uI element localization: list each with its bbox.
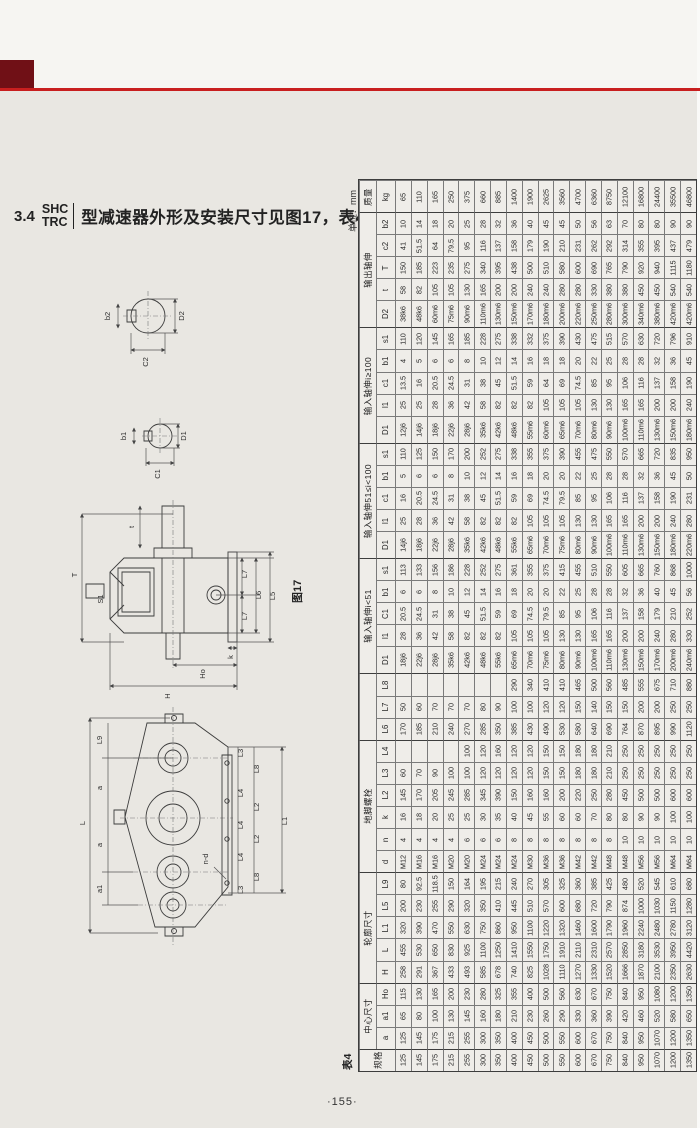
table-value-cell: M12 — [395, 850, 411, 872]
table-value-cell: 455 — [569, 558, 585, 580]
table-value-cell: 250 — [664, 696, 680, 718]
table-value-cell: 400 — [506, 1027, 522, 1049]
table-value-cell: 20 — [427, 806, 443, 828]
table-value-cell: 385 — [506, 718, 522, 740]
table-value-cell: 14 — [411, 212, 427, 234]
table-value-cell: 210 — [664, 602, 680, 624]
table-value-cell: 835 — [664, 443, 680, 465]
table-sub-label: kg — [376, 180, 395, 212]
table-value-cell: 1100 — [522, 916, 538, 938]
table-value-cell: 450 — [617, 784, 633, 806]
table-value-cell: 2850 — [617, 938, 633, 960]
table-value-cell: 63 — [601, 212, 617, 234]
table-sub-label: k — [376, 806, 395, 828]
table-value-cell: 36 — [664, 349, 680, 371]
table-value-cell: 4 — [427, 828, 443, 850]
table-value-cell: 70 — [617, 212, 633, 234]
dim-label-L2-1: L2 — [252, 803, 261, 811]
table-value-cell: 28 — [427, 394, 443, 416]
table-value-cell: 260 — [538, 1005, 554, 1027]
table-value-cell: 2310 — [585, 938, 601, 960]
table-value-cell: 2780 — [664, 916, 680, 938]
table-value-cell: 275 — [458, 256, 474, 278]
table-value-cell: 250 — [664, 740, 680, 762]
table-value-cell: 45 — [490, 372, 506, 394]
table-value-cell: 150m6 — [633, 646, 649, 673]
table-value-cell: 120 — [474, 762, 490, 784]
table-value-cell: 950 — [506, 916, 522, 938]
table-value-cell: 150 — [506, 784, 522, 806]
table-value-cell: 320 — [395, 916, 411, 938]
table-value-cell: 74.5 — [522, 602, 538, 624]
table-value-cell: 252 — [680, 602, 696, 624]
table-value-cell: 105 — [538, 624, 554, 646]
table-value-cell: 895 — [648, 718, 664, 740]
table-value-cell: 200 — [648, 394, 664, 416]
table-sub-label: b1 — [376, 349, 395, 371]
table-value-cell: 28 — [474, 212, 490, 234]
table-value-cell: 600 — [664, 784, 680, 806]
table-value-cell: 230 — [411, 894, 427, 916]
table-value-cell: 210 — [506, 1005, 522, 1027]
table-value-cell: 82 — [474, 509, 490, 531]
table-value-cell: 185 — [458, 327, 474, 349]
table-value-cell: 1270 — [569, 961, 585, 983]
dim-label-L4-2: L4 — [236, 821, 245, 829]
table-value-cell: 28 — [411, 509, 427, 531]
table-value-cell: 490 — [538, 718, 554, 740]
table-value-cell: 18 — [522, 465, 538, 487]
table-value-cell: 36 — [506, 212, 522, 234]
table-value-cell: 420m6 — [680, 300, 696, 327]
table-value-cell: 18 — [553, 349, 569, 371]
section-title: 3.4 SHC TRC 型减速器外形及安装尺寸见图17，表4 — [14, 203, 365, 229]
table-value-cell — [458, 673, 474, 695]
table-value-cell: 600 — [569, 256, 585, 278]
table-group-label: 规格 — [359, 1049, 395, 1071]
table-sub-label: s1 — [376, 327, 395, 349]
table-value-cell: 650 — [427, 938, 443, 960]
table-value-cell: 355 — [522, 443, 538, 465]
table-value-cell: M16 — [411, 850, 427, 872]
table-value-cell: 100 — [522, 696, 538, 718]
table-value-cell: 220 — [569, 784, 585, 806]
table-value-cell: 6 — [427, 349, 443, 371]
table-value-cell: 355 — [506, 983, 522, 1005]
table-value-cell: 65m6 — [553, 416, 569, 443]
table-value-cell: 32 — [617, 580, 633, 602]
table-value-cell: 8 — [443, 465, 459, 487]
table-value-cell: 950 — [633, 1049, 649, 1071]
table-sub-label: H — [376, 961, 395, 983]
table-value-cell: 113 — [395, 558, 411, 580]
table-value-cell: 240 — [664, 509, 680, 531]
table-value-cell: 28j6 — [443, 531, 459, 558]
table-value-cell: 475 — [585, 327, 601, 349]
table-value-cell: 670 — [585, 983, 601, 1005]
model-trc: TRC — [42, 216, 68, 229]
table-value-cell: 630 — [458, 916, 474, 938]
table-value-cell: 165 — [601, 624, 617, 646]
table-value-cell: 255 — [458, 1027, 474, 1049]
table-sub-label: c1 — [376, 372, 395, 394]
table-value-cell: 56 — [680, 580, 696, 602]
table-value-cell: 60m6 — [538, 416, 554, 443]
table-value-cell: 158 — [633, 602, 649, 624]
table-value-cell: 165 — [427, 983, 443, 1005]
table-value-cell: 36 — [633, 580, 649, 602]
table-value-cell: 110 — [395, 443, 411, 465]
table-value-cell: 100 — [680, 806, 696, 828]
table-value-cell: 175 — [427, 1049, 443, 1071]
table-value-cell: 580 — [569, 718, 585, 740]
table-value-cell: 250 — [617, 740, 633, 762]
table-value-cell: 330 — [585, 278, 601, 300]
table-value-cell: 35k6 — [443, 646, 459, 673]
table-value-cell: 165 — [585, 624, 601, 646]
table-value-cell: 137 — [617, 602, 633, 624]
table-value-cell: M42 — [585, 850, 601, 872]
table-value-cell: 510 — [585, 558, 601, 580]
table-value-cell: 240 — [443, 718, 459, 740]
table-value-cell: 165 — [443, 327, 459, 349]
table-value-cell: 70m6 — [538, 531, 554, 558]
table-value-cell: 60 — [395, 762, 411, 784]
table-value-cell: 150 — [427, 443, 443, 465]
table-value-cell: 258 — [395, 961, 411, 983]
table-value-cell: 42 — [427, 624, 443, 646]
table-value-cell: M56 — [633, 850, 649, 872]
table-value-cell: 290 — [506, 673, 522, 695]
table-value-cell: 200m6 — [664, 646, 680, 673]
table-group-label: 中心尺寸 — [359, 983, 376, 1049]
table-value-cell: 79.5 — [553, 487, 569, 509]
table-value-cell: 70 — [585, 806, 601, 828]
table-value-cell: 430 — [522, 718, 538, 740]
table-value-cell: 150 — [395, 256, 411, 278]
table-value-cell: 70 — [427, 696, 443, 718]
table-value-cell: 640 — [585, 718, 601, 740]
table-value-cell: 125 — [395, 1049, 411, 1071]
table-value-cell: 158 — [648, 487, 664, 509]
table-value-cell: 45 — [474, 487, 490, 509]
table-value-cell: 74.5 — [538, 487, 554, 509]
table-value-cell: 415 — [553, 558, 569, 580]
table-value-cell: 18 — [506, 580, 522, 602]
table-value-cell: 600 — [569, 1027, 585, 1049]
table-value-cell: 1520 — [601, 961, 617, 983]
table-value-cell: 215 — [443, 1027, 459, 1049]
table-value-cell: 42 — [443, 509, 459, 531]
table-value-cell: M24 — [506, 850, 522, 872]
table-value-cell: 250 — [633, 762, 649, 784]
table-value-cell: 12j6 — [395, 416, 411, 443]
table-value-cell: 130 — [458, 278, 474, 300]
table-value-cell: 80 — [633, 212, 649, 234]
table-value-cell: 10 — [443, 580, 459, 602]
table-value-cell: 720 — [585, 894, 601, 916]
table-value-cell: 79.5 — [538, 602, 554, 624]
table-value-cell: 179 — [648, 602, 664, 624]
table-value-cell: 158 — [664, 372, 680, 394]
table-value-cell: 82 — [490, 624, 506, 646]
table-value-cell: 70 — [458, 696, 474, 718]
table-value-cell: 106 — [585, 602, 601, 624]
table-value-cell: 38 — [474, 372, 490, 394]
table-value-cell — [474, 673, 490, 695]
table-value-cell: 262 — [585, 234, 601, 256]
table-value-cell — [490, 673, 506, 695]
table-value-cell: 250 — [680, 696, 696, 718]
table-value-cell: 24.5 — [427, 487, 443, 509]
table-value-cell: 31 — [427, 602, 443, 624]
table-value-cell: 120 — [474, 740, 490, 762]
table-value-cell: 220m6 — [569, 300, 585, 327]
table-value-cell — [427, 740, 443, 762]
table-value-cell: 130m6 — [633, 531, 649, 558]
table-value-cell: 240m6 — [680, 646, 696, 673]
table-value-cell: 2480 — [648, 916, 664, 938]
table-value-cell: 42 — [458, 394, 474, 416]
dim-label-L8-top: L8 — [252, 765, 261, 773]
table-value-cell: 3530 — [648, 938, 664, 960]
table-value-cell: 840 — [617, 983, 633, 1005]
table-value-cell: 550 — [601, 443, 617, 465]
dim-label-n-d: n-d — [201, 854, 210, 865]
table-value-cell: 150 — [601, 696, 617, 718]
table-value-cell: 665 — [633, 558, 649, 580]
table-value-cell: 275 — [490, 443, 506, 465]
dim-label-Ho: Ho — [198, 669, 207, 679]
table-value-cell: 291 — [411, 961, 427, 983]
table-value-cell: 58 — [443, 624, 459, 646]
table-value-cell: 80 — [601, 806, 617, 828]
table-value-cell: 125 — [411, 443, 427, 465]
table-value-cell: 650 — [680, 1005, 696, 1027]
dim-label-t: t — [127, 525, 136, 528]
table-value-cell: 45 — [664, 580, 680, 602]
table-value-cell: 12 — [474, 465, 490, 487]
table-value-cell: 35k6 — [474, 416, 490, 443]
table-value-cell: 116 — [601, 602, 617, 624]
table-value-cell: 70 — [443, 696, 459, 718]
table-value-cell: 130m6 — [648, 416, 664, 443]
table-value-cell: 560 — [601, 673, 617, 695]
table-sub-label: L8 — [376, 673, 395, 695]
table-value-cell: 600 — [553, 894, 569, 916]
table-value-cell: 51.5 — [411, 234, 427, 256]
table-value-cell: 137 — [633, 487, 649, 509]
table-sub-label: D1 — [376, 531, 395, 558]
table-group-label: 输入轴伸i<51 — [359, 558, 376, 673]
table-value-cell: 85 — [585, 372, 601, 394]
table-value-cell: 14j6 — [411, 416, 427, 443]
dim-label-L: L — [78, 821, 87, 825]
table-value-cell: 6 — [395, 580, 411, 602]
table-sub-label: b1 — [376, 465, 395, 487]
table-value-cell: 55m6 — [522, 416, 538, 443]
table-value-cell: 80m6 — [569, 531, 585, 558]
table-value-cell: 438 — [506, 256, 522, 278]
table-value-cell: 340 — [522, 673, 538, 695]
table-value-cell: 1180 — [680, 256, 696, 278]
table-value-cell: 130 — [553, 624, 569, 646]
input-shaft-stub — [114, 810, 125, 824]
table-value-cell: 130 — [585, 394, 601, 416]
table-sub-label: D1 — [376, 416, 395, 443]
table-value-cell: 90 — [648, 806, 664, 828]
table-value-cell: 105 — [522, 509, 538, 531]
table-value-cell: 840 — [617, 1027, 633, 1049]
table-value-cell: 400 — [522, 983, 538, 1005]
table-value-cell: 390 — [553, 327, 569, 349]
dim-label-b1: b1 — [119, 432, 128, 440]
dim-label-k: k — [226, 655, 235, 659]
dim-label-c1: C1 — [153, 469, 162, 479]
page-number: ·155· — [327, 1096, 358, 1108]
table-value-cell: 433 — [443, 961, 459, 983]
table-value-cell: 14 — [506, 349, 522, 371]
dim-label-a-2: a — [95, 842, 104, 847]
table-value-cell: 50 — [569, 212, 585, 234]
input-shaft-section-drawing: D1 b1 C1 — [118, 406, 218, 496]
table-value-cell: 105 — [506, 624, 522, 646]
table-value-cell: 42k6 — [490, 416, 506, 443]
table-value-cell: 18j6 — [427, 416, 443, 443]
table-value-cell: 4700 — [569, 180, 585, 212]
table-value-cell: 1460 — [569, 916, 585, 938]
table-value-cell: 1350 — [680, 1049, 696, 1071]
table-value-cell: 150 — [553, 762, 569, 784]
table-value-cell: 8 — [585, 828, 601, 850]
table-value-cell — [443, 673, 459, 695]
table-value-cell: 69 — [553, 372, 569, 394]
table-value-cell: 18 — [427, 212, 443, 234]
table-value-cell: 22 — [585, 349, 601, 371]
table-value-cell: 158 — [506, 234, 522, 256]
table-value-cell: 70m6 — [569, 416, 585, 443]
table-value-cell: 678 — [490, 961, 506, 983]
table-value-cell: 48k6 — [490, 531, 506, 558]
table-value-cell: 720 — [648, 327, 664, 349]
base-rail — [222, 755, 232, 895]
table-value-cell: 25 — [585, 465, 601, 487]
table-value-cell: 125 — [395, 1027, 411, 1049]
table-value-cell: 250 — [664, 762, 680, 784]
table-value-cell: 180m6 — [664, 531, 680, 558]
output-shaft-section-drawing: D2 b2 C2 — [98, 276, 223, 381]
table-group-label: 轮廓尺寸 — [359, 872, 376, 982]
table-value-cell: 500 — [538, 983, 554, 1005]
table-value-cell: 275 — [490, 558, 506, 580]
table-value-cell: 510 — [538, 256, 554, 278]
table-value-cell: 1600 — [585, 916, 601, 938]
table-value-cell: 670 — [585, 1027, 601, 1049]
table-value-cell: 690 — [585, 256, 601, 278]
table-value-cell: 32 — [648, 349, 664, 371]
table-value-cell: 8 — [553, 828, 569, 850]
table-sub-label: L7 — [376, 696, 395, 718]
table-value-cell: 2625 — [538, 180, 554, 212]
table-sub-label: L — [376, 938, 395, 960]
table-value-cell: 240 — [648, 624, 664, 646]
dim-label-L4-1: L4 — [236, 789, 245, 797]
table-value-cell: 200 — [443, 983, 459, 1005]
table-value-cell: 92.5 — [411, 872, 427, 894]
table-value-cell: 515 — [601, 327, 617, 349]
table-value-cell: 868 — [664, 558, 680, 580]
table-value-cell: 82 — [506, 394, 522, 416]
table-value-cell: M16 — [427, 850, 443, 872]
table-value-cell: 56 — [585, 212, 601, 234]
table-value-cell: 42k6 — [474, 531, 490, 558]
table-value-cell: 22j6 — [427, 531, 443, 558]
table-value-cell: 300 — [474, 1049, 490, 1071]
table-value-cell: 710 — [664, 673, 680, 695]
table-value-cell: 110m6 — [617, 531, 633, 558]
table-value-cell: 180 — [490, 1005, 506, 1027]
reducer-side-view-drawing: T t S1 L7 L7 L6 L5 k Ho H — [70, 500, 310, 715]
table-value-cell: 116 — [617, 487, 633, 509]
table-sub-label: T — [376, 256, 395, 278]
table-value-cell: 3120 — [680, 916, 696, 938]
table-value-cell: 22 — [553, 580, 569, 602]
table-value-cell: 450 — [522, 1049, 538, 1071]
table-value-cell: M36 — [553, 850, 569, 872]
table-value-cell: 8 — [522, 828, 538, 850]
table-value-cell: 280 — [664, 624, 680, 646]
table-sub-label: D1 — [376, 646, 395, 673]
table-sub-label: L3 — [376, 762, 395, 784]
table-value-cell: 790 — [601, 894, 617, 916]
table-value-cell: 500 — [633, 784, 649, 806]
table-value-cell: 228 — [474, 327, 490, 349]
table-value-cell: 390 — [601, 1005, 617, 1027]
table-value-cell: M30 — [522, 850, 538, 872]
table-value-cell: 100m6 — [601, 531, 617, 558]
table-value-cell: 28 — [617, 349, 633, 371]
table-value-cell: 796 — [664, 327, 680, 349]
table-value-cell: 670 — [585, 1049, 601, 1071]
dim-label-L7-top: L7 — [240, 570, 249, 578]
table-value-cell: 280m6 — [601, 300, 617, 327]
table-value-cell: 874 — [617, 894, 633, 916]
table-sub-label: a — [376, 1027, 395, 1049]
table-value-cell: M36 — [538, 850, 554, 872]
table-value-cell: 116 — [633, 372, 649, 394]
table-value-cell: 70 — [411, 762, 427, 784]
table-value-cell: 4 — [395, 828, 411, 850]
table-value-cell: 10 — [633, 828, 649, 850]
table-value-cell: 35500 — [664, 180, 680, 212]
table-sub-label: L4 — [376, 740, 395, 762]
table-value-cell: 200 — [648, 696, 664, 718]
table-value-cell: 50 — [395, 696, 411, 718]
table-value-cell: 400 — [506, 1049, 522, 1071]
table-value-cell: 20 — [538, 580, 554, 602]
table-value-cell: 880 — [680, 673, 696, 695]
table-value-cell — [411, 673, 427, 695]
table-value-cell: 200 — [506, 278, 522, 300]
table-value-cell: 330 — [680, 624, 696, 646]
table-value-cell: 20 — [443, 212, 459, 234]
table-value-cell: 195 — [474, 872, 490, 894]
table-value-cell: 45 — [522, 806, 538, 828]
table-value-cell: 28 — [601, 580, 617, 602]
table-value-cell: 145 — [411, 1027, 427, 1049]
table-value-cell: 10 — [680, 828, 696, 850]
table-value-cell: 445 — [506, 894, 522, 916]
